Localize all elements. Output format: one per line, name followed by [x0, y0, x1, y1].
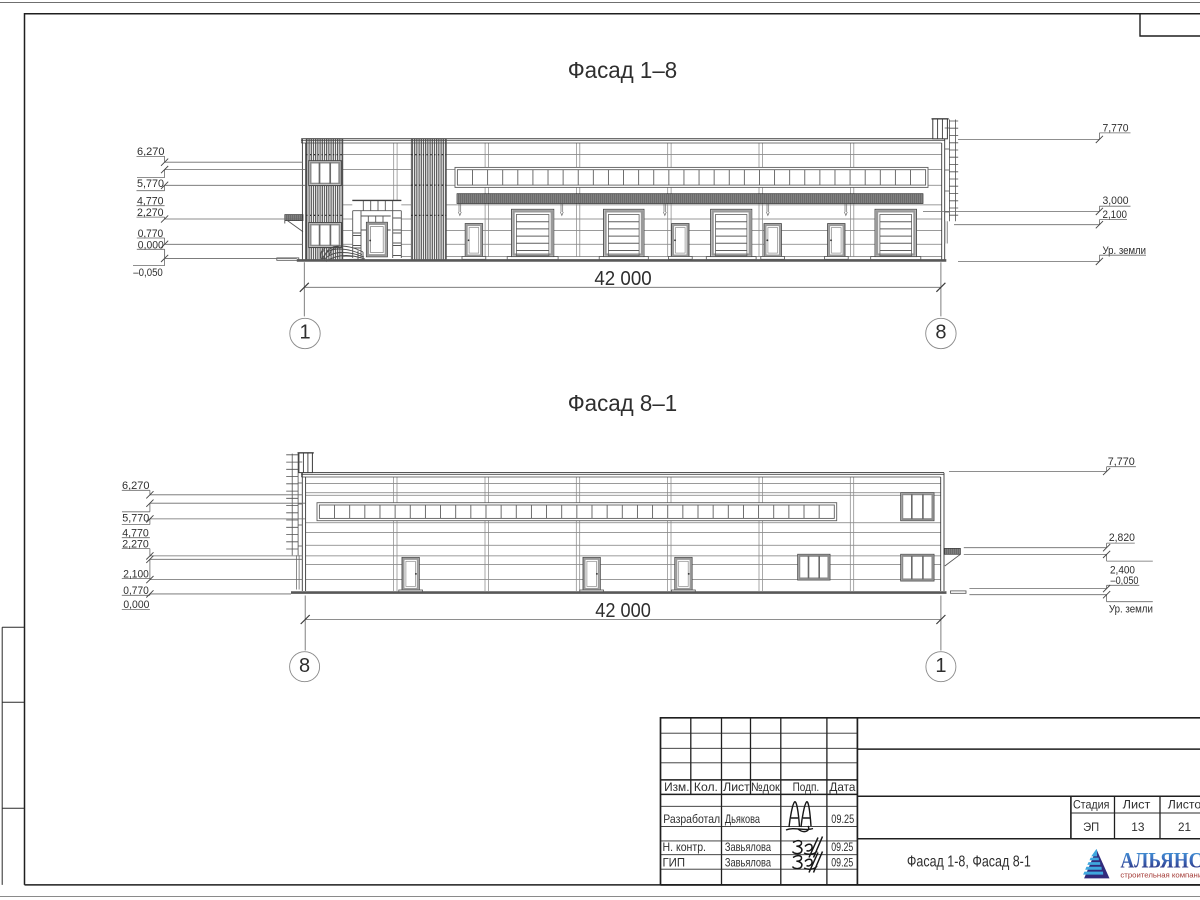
svg-text:3,000: 3,000 [1103, 195, 1129, 207]
svg-text:8: 8 [299, 655, 310, 677]
svg-text:Дата: Дата [829, 780, 855, 794]
svg-text:2,270: 2,270 [122, 538, 149, 550]
svg-text:Кол.: Кол. [694, 780, 718, 794]
svg-text:Листов: Листов [1168, 797, 1200, 811]
svg-text:09.25: 09.25 [831, 813, 854, 826]
svg-text:Лист: Лист [1123, 797, 1151, 811]
svg-text:42 000: 42 000 [594, 268, 651, 290]
svg-text:13: 13 [1131, 820, 1144, 834]
svg-text:Лист: Лист [723, 780, 750, 794]
svg-text:№док: №док [751, 780, 780, 794]
svg-text:8: 8 [935, 322, 946, 344]
svg-text:ЭП: ЭП [1083, 820, 1099, 834]
svg-text:Завьялова: Завьялова [725, 856, 772, 869]
svg-text:09.25: 09.25 [831, 857, 853, 870]
svg-text:ГИП: ГИП [663, 856, 686, 869]
svg-text:–0,050: –0,050 [133, 267, 163, 279]
svg-text:Дьякова: Дьякова [725, 813, 761, 826]
svg-text:Разработал: Разработал [663, 813, 720, 826]
svg-text:09.25: 09.25 [831, 841, 853, 854]
svg-text:Н. контр.: Н. контр. [663, 841, 707, 854]
svg-text:Фасад 1-8, Фасад 8-1: Фасад 1-8, Фасад 8-1 [907, 854, 1031, 871]
svg-text:Стадия: Стадия [1073, 798, 1110, 812]
svg-text:42 000: 42 000 [595, 600, 651, 622]
svg-text:2,820: 2,820 [1109, 532, 1135, 544]
svg-text:5,770: 5,770 [122, 513, 149, 525]
svg-text:строительная компания: строительная компания [1120, 870, 1200, 879]
svg-text:7,770: 7,770 [1108, 456, 1135, 468]
svg-text:2,100: 2,100 [123, 568, 149, 580]
svg-text:Фасад 8–1: Фасад 8–1 [568, 390, 678, 416]
svg-text:Изм.: Изм. [664, 780, 689, 794]
svg-text:1: 1 [935, 655, 946, 677]
svg-text:2,270: 2,270 [137, 207, 164, 219]
svg-text:1: 1 [299, 322, 310, 344]
svg-text:5,770: 5,770 [137, 178, 164, 190]
svg-text:21: 21 [1178, 820, 1191, 834]
svg-text:Фасад 1–8: Фасад 1–8 [568, 57, 678, 83]
svg-text:Завьялова: Завьялова [725, 841, 772, 854]
svg-text:АЛЬЯНС: АЛЬЯНС [1120, 848, 1200, 873]
svg-text:Подп.: Подп. [793, 780, 820, 794]
svg-text:Ур. земли: Ур. земли [1109, 604, 1153, 616]
